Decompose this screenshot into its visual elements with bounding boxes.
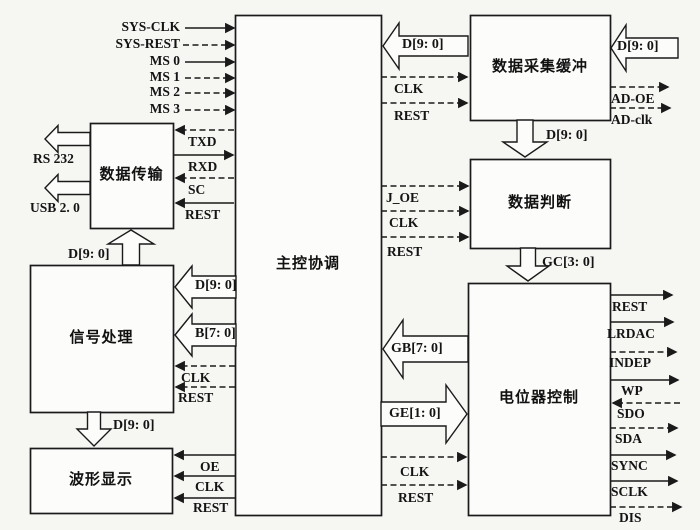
label-d90-to-signal: D[9: 0] — [195, 279, 237, 293]
label-clk-wd: CLK — [195, 480, 224, 494]
label-ms2: MS 2 — [150, 85, 180, 99]
label-data-acquisition-buffer: 数据采集缓冲 — [492, 59, 588, 74]
label-rs232: RS 232 — [33, 152, 74, 166]
label-data-transfer: 数据传输 — [99, 167, 163, 182]
label-ms1: MS 1 — [150, 70, 180, 84]
label-data-judgment: 数据判断 — [508, 195, 572, 210]
label-d90-adc-input: D[9: 0] — [617, 40, 659, 54]
label-lrdac: LRDAC — [607, 327, 655, 341]
label-sdo: SDO — [617, 407, 645, 421]
label-b70-to-signal: B[7: 0] — [195, 327, 236, 341]
block-diagram: 主控协调数据传输信号处理波形显示数据采集缓冲数据判断电位器控制SYS-CLKSY… — [0, 0, 700, 530]
label-sys-rest: SYS-REST — [115, 37, 180, 51]
label-txd: TXD — [188, 135, 217, 149]
label-potentiometer-control: 电位器控制 — [499, 390, 579, 405]
label-d90-to-wave: D[9: 0] — [113, 419, 155, 433]
label-dis: DIS — [619, 511, 642, 525]
label-signal-processing: 信号处理 — [69, 330, 133, 345]
label-d90-to-judge: D[9: 0] — [546, 129, 588, 143]
label-sc: SC — [188, 183, 205, 197]
label-rest-daq: REST — [394, 109, 429, 123]
label-clk-pc: CLK — [400, 465, 429, 479]
label-rest-pc: REST — [398, 491, 433, 505]
label-waveform-display: 波形显示 — [69, 472, 133, 487]
label-d90-to-transfer: D[9: 0] — [68, 248, 110, 262]
label-ad-clk: AD-clk — [611, 113, 652, 127]
label-clk-sp: CLK — [181, 371, 210, 385]
label-rest-sp: REST — [178, 391, 213, 405]
label-rest-out: REST — [612, 300, 647, 314]
label-oe-wd: OE — [200, 460, 220, 474]
label-d90-to-main: D[9: 0] — [402, 38, 444, 52]
label-rxd: RXD — [188, 160, 217, 174]
label-sda: SDA — [615, 432, 642, 446]
label-ms3: MS 3 — [150, 102, 180, 116]
label-clk-dj: CLK — [389, 216, 418, 230]
label-ad-oe: AD-OE — [611, 92, 655, 106]
label-ge10-to-pot: GE[1: 0] — [389, 407, 441, 421]
label-j-oe: J_OE — [386, 191, 419, 205]
label-sclk: SCLK — [611, 485, 648, 499]
label-sys-clk: SYS-CLK — [121, 20, 180, 34]
label-wp: WP — [621, 384, 643, 398]
label-gb70-to-main: GB[7: 0] — [391, 342, 443, 356]
label-rest-dt: REST — [185, 208, 220, 222]
label-usb20: USB 2. 0 — [30, 201, 80, 215]
label-indep: INDEP — [609, 356, 651, 370]
label-ms0: MS 0 — [150, 54, 180, 68]
diagram-labels: 主控协调数据传输信号处理波形显示数据采集缓冲数据判断电位器控制SYS-CLKSY… — [0, 0, 700, 530]
label-main-control: 主控协调 — [276, 256, 340, 271]
label-rest-dj: REST — [387, 245, 422, 259]
label-clk-daq: CLK — [394, 82, 423, 96]
label-sync: SYNC — [611, 459, 648, 473]
label-gc30-to-pot: GC[3: 0] — [542, 256, 595, 270]
label-rest-wd: REST — [193, 501, 228, 515]
